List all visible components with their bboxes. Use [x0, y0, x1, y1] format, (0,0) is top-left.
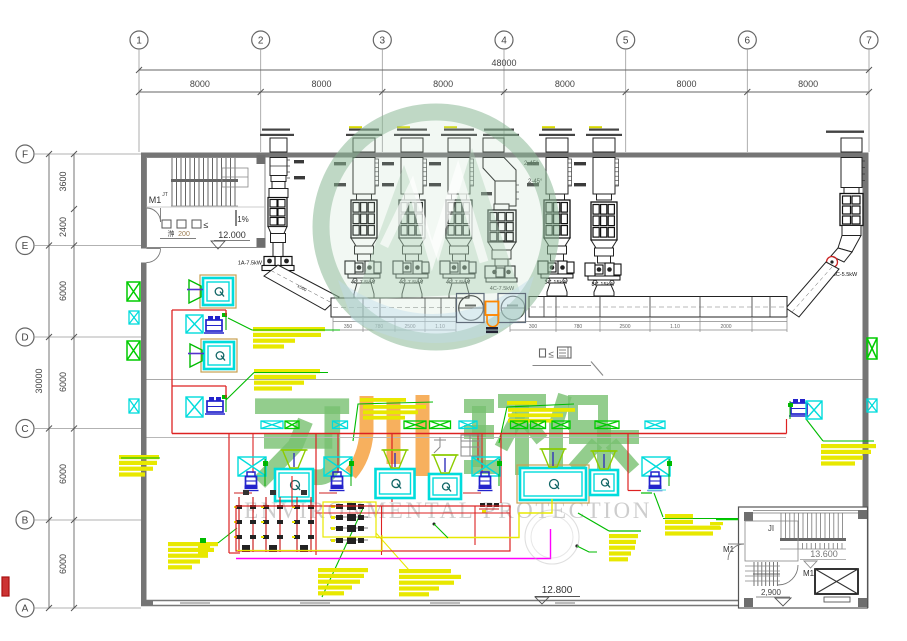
svg-text:2400: 2400	[58, 217, 68, 237]
svg-text:1.10: 1.10	[670, 324, 680, 330]
svg-text:8000: 8000	[798, 79, 818, 89]
svg-text:6000: 6000	[58, 281, 68, 301]
svg-text:≤: ≤	[548, 350, 554, 361]
svg-text:浺: 浺	[168, 229, 175, 238]
svg-text:≤: ≤	[204, 220, 209, 230]
svg-text:8C-5.5kW: 8C-5.5kW	[833, 272, 858, 278]
svg-text:F: F	[22, 150, 28, 161]
svg-text:3600: 3600	[58, 171, 68, 191]
svg-text:JT: JT	[162, 192, 168, 198]
svg-text:300: 300	[529, 324, 538, 330]
svg-text:D: D	[21, 333, 28, 344]
svg-text:8000: 8000	[311, 79, 331, 89]
svg-text:8000: 8000	[555, 79, 575, 89]
svg-text:1%: 1%	[237, 215, 249, 224]
svg-text:2500: 2500	[619, 324, 630, 330]
svg-text:6000: 6000	[58, 554, 68, 574]
svg-text:200: 200	[178, 231, 190, 238]
svg-text:M1: M1	[803, 569, 815, 578]
svg-text:B: B	[22, 516, 29, 527]
svg-text:2000: 2000	[720, 324, 731, 330]
svg-text:12.800: 12.800	[542, 585, 573, 596]
svg-text:8000: 8000	[433, 79, 453, 89]
svg-text:6000: 6000	[58, 464, 68, 484]
svg-text:C: C	[21, 424, 28, 435]
svg-text:M1: M1	[149, 195, 162, 205]
svg-text:M1: M1	[723, 545, 735, 554]
svg-text:8000: 8000	[676, 79, 696, 89]
svg-text:8000: 8000	[190, 79, 210, 89]
svg-text:E: E	[22, 241, 29, 252]
svg-text:2: 2	[258, 36, 264, 47]
svg-text:13.600: 13.600	[810, 549, 838, 559]
svg-text:5: 5	[623, 36, 629, 47]
svg-text:7: 7	[866, 36, 872, 47]
svg-text:A: A	[22, 604, 29, 615]
svg-text:6000: 6000	[58, 372, 68, 392]
svg-text:350: 350	[344, 324, 353, 330]
svg-text:780: 780	[574, 324, 583, 330]
svg-text:JI: JI	[768, 524, 774, 533]
svg-text:4: 4	[501, 36, 507, 47]
svg-text:3: 3	[380, 36, 386, 47]
svg-text:12.000: 12.000	[218, 230, 246, 240]
svg-text:1A-7.5kW: 1A-7.5kW	[238, 261, 263, 267]
svg-text:1: 1	[136, 36, 142, 47]
svg-text:48000: 48000	[491, 58, 516, 68]
svg-text:6: 6	[745, 36, 751, 47]
svg-text:2,900: 2,900	[761, 588, 782, 597]
svg-text:30000: 30000	[34, 368, 44, 393]
